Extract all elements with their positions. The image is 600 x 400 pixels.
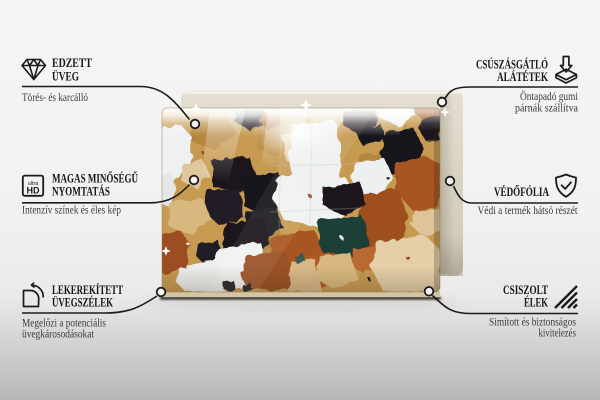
svg-text:HD: HD: [27, 186, 40, 196]
svg-text:MAGAS MINŐSÉGŰ: MAGAS MINŐSÉGŰ: [52, 171, 138, 186]
svg-text:ALÁTÉTEK: ALÁTÉTEK: [497, 70, 548, 84]
svg-text:üvegkárosodásokat: üvegkárosodásokat: [22, 329, 95, 341]
svg-text:NYOMTATÁS: NYOMTATÁS: [52, 185, 110, 199]
svg-text:ÜVEGSZÉLEK: ÜVEGSZÉLEK: [52, 296, 113, 310]
svg-text:VÉDŐFÓLIA: VÉDŐFÓLIA: [494, 184, 549, 199]
svg-text:Törés- és karcálló: Törés- és karcálló: [22, 92, 88, 104]
svg-text:Intenzív színek és éles kép: Intenzív színek és éles kép: [22, 205, 121, 217]
svg-text:kivitelezés: kivitelezés: [539, 328, 577, 340]
svg-text:EDZETT: EDZETT: [52, 56, 93, 70]
svg-text:ÉLEK: ÉLEK: [524, 296, 548, 310]
svg-text:ÜVEG: ÜVEG: [52, 70, 79, 84]
svg-text:Védi a termék hátsó részét: Védi a termék hátsó részét: [478, 205, 579, 217]
svg-text:párnák szállítva: párnák szállítva: [515, 103, 578, 115]
svg-text:Öntapadó gumi: Öntapadó gumi: [520, 89, 578, 103]
